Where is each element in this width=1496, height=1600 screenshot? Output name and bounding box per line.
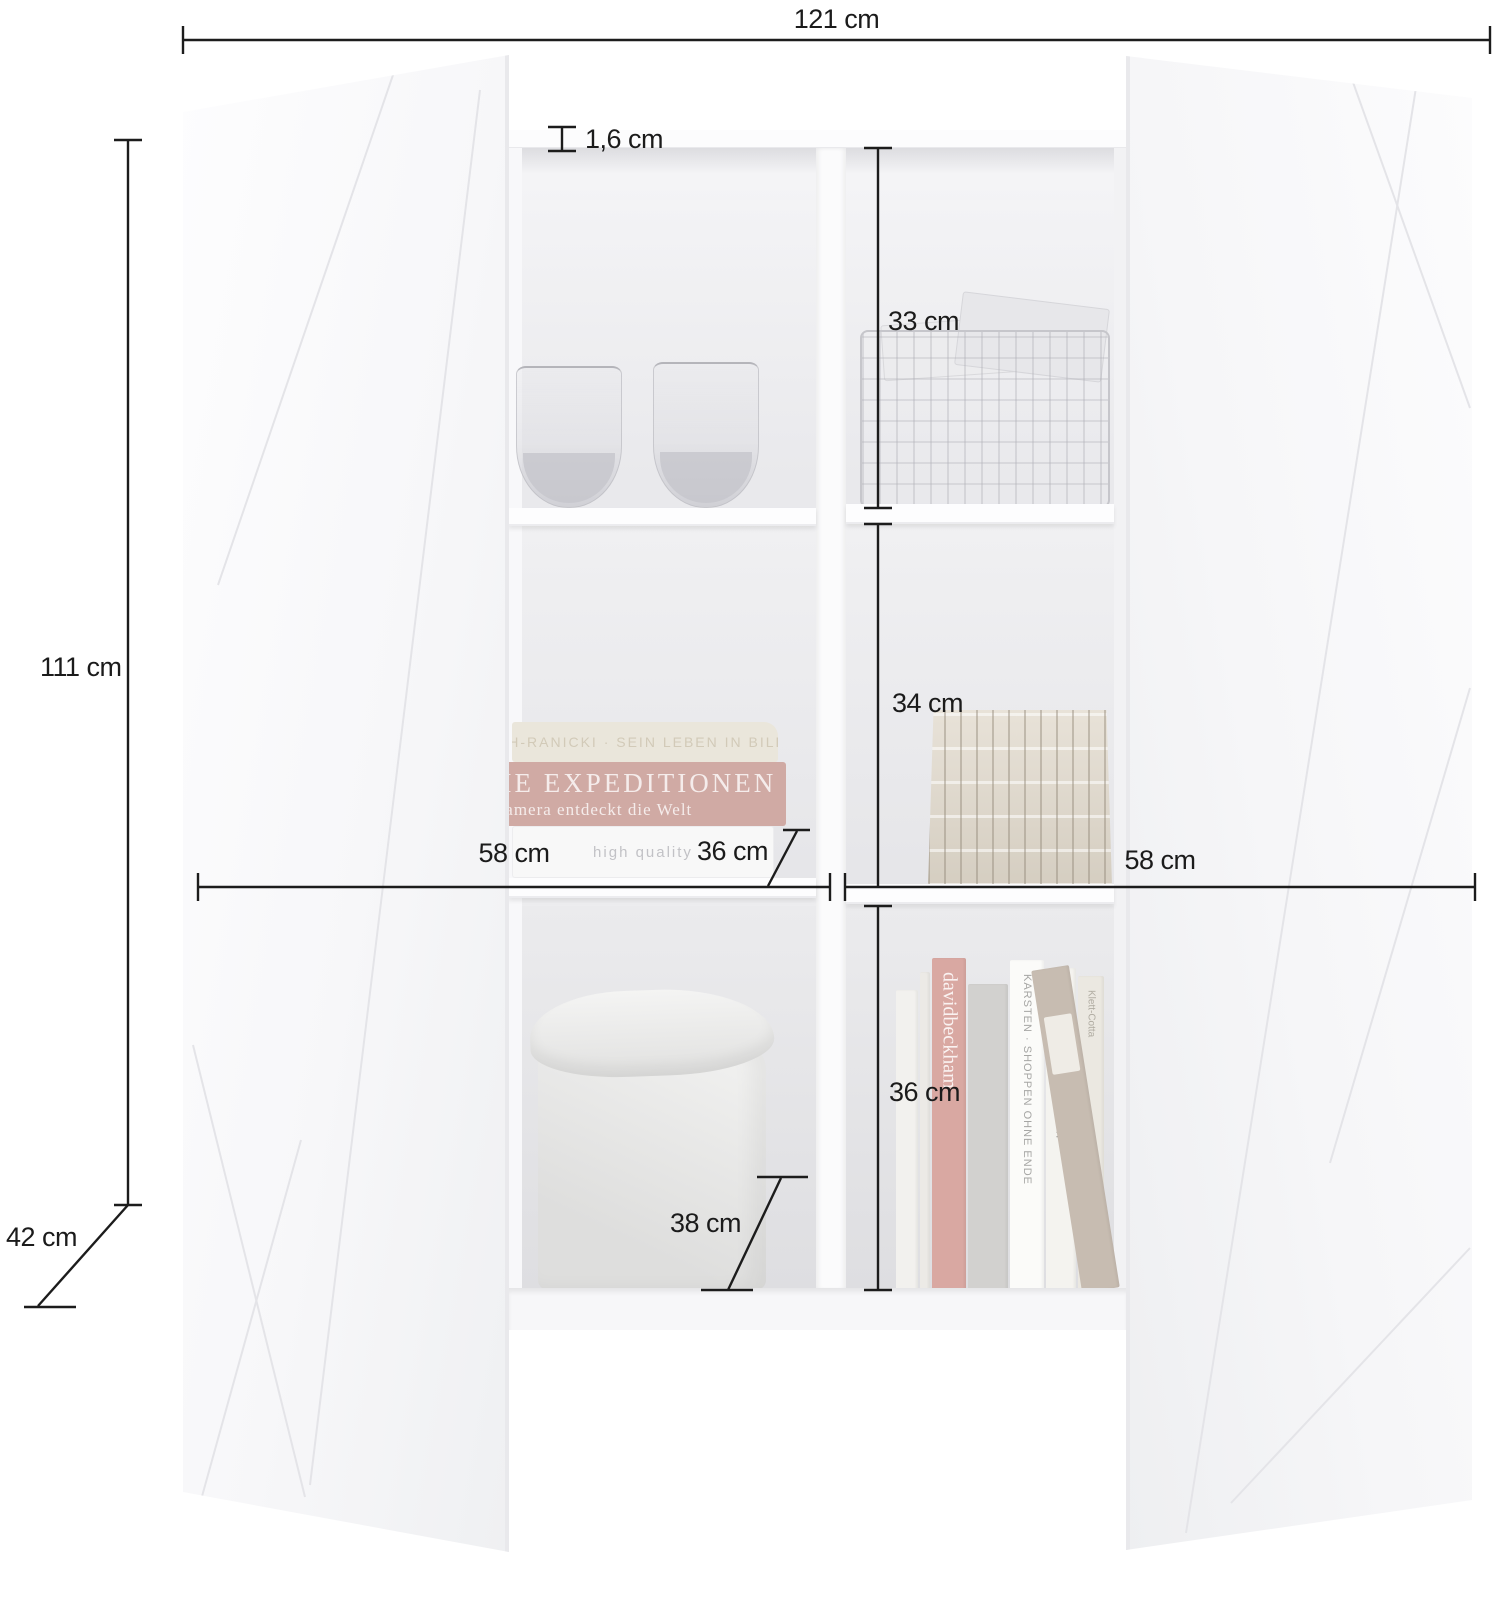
dimension-label-right-compartment-width: 58 cm	[845, 845, 1475, 876]
dimension-label-bottom-compartment-height: 36 cm	[889, 1077, 960, 1108]
dimension-label-top-compartment-height: 33 cm	[888, 306, 959, 337]
dimension-label-panel-thickness: 1,6 cm	[585, 124, 663, 155]
dimension-label-total-width: 121 cm	[183, 4, 1490, 35]
dimension-label-total-depth: 42 cm	[6, 1222, 77, 1253]
dimension-label-total-height: 111 cm	[40, 652, 122, 683]
dimension-label-bottom-compartment-depth: 38 cm	[670, 1208, 741, 1239]
dimension-lines	[0, 0, 1496, 1600]
product-dimension-diagram: Reich-Ranicki · Sein Leben in Bildern DI…	[0, 0, 1496, 1600]
dimension-label-middle-compartment-height: 34 cm	[892, 688, 963, 719]
dimension-label-middle-compartment-depth: 36 cm	[640, 836, 768, 867]
